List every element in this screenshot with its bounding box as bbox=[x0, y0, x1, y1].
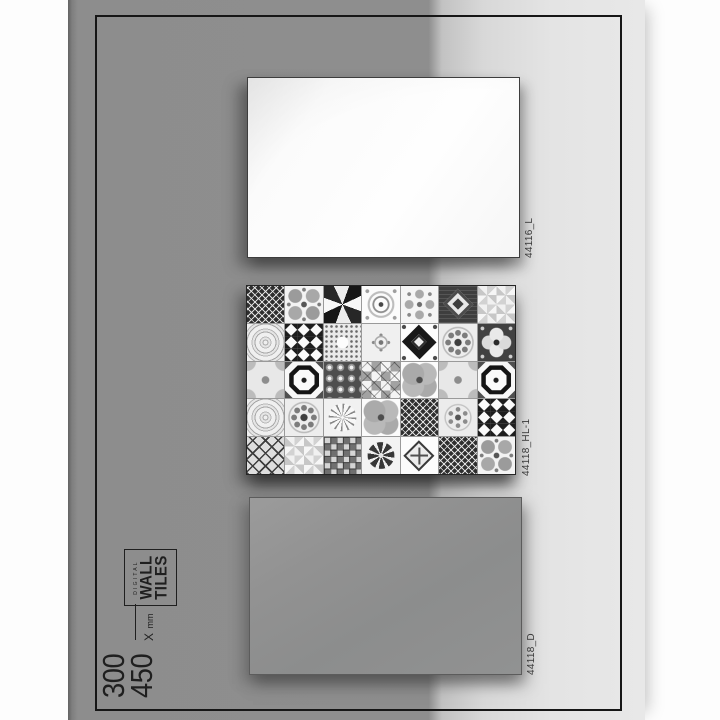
pattern-cell-rosette-lace bbox=[247, 399, 284, 436]
pattern-cell-rosette-ring bbox=[285, 399, 322, 436]
pattern-cell-big-diamond bbox=[401, 324, 438, 361]
tile-sample-dark: 44118_D bbox=[249, 497, 522, 675]
pattern-cell-x-lattice bbox=[247, 437, 284, 474]
pattern-cell-quatrefoil bbox=[439, 362, 476, 399]
pattern-cell-dot-star bbox=[324, 324, 361, 361]
size-numbers: 300 450 bbox=[100, 654, 155, 698]
size-unit-group: X mm bbox=[140, 614, 158, 641]
pattern-cell-diamond-cross bbox=[401, 437, 438, 474]
pattern-cell-rosette-lace bbox=[247, 324, 284, 361]
size-separator: X bbox=[142, 633, 156, 641]
pattern-cell-dot-medallion bbox=[362, 286, 399, 323]
pattern-cell-lattice-dark bbox=[247, 286, 284, 323]
pattern-cell-pinwheel-dark bbox=[324, 286, 361, 323]
pattern-cell-circle-grid bbox=[324, 362, 361, 399]
pattern-cell-lattice-dark bbox=[439, 437, 476, 474]
pattern-cell-dark-floral bbox=[478, 324, 515, 361]
pattern-cell-octagon bbox=[285, 362, 322, 399]
pattern-cell-ornate-dark bbox=[439, 286, 476, 323]
pattern-cell-octagon bbox=[478, 362, 515, 399]
size-unit: mm bbox=[145, 614, 155, 629]
size-bracket-line bbox=[135, 604, 136, 640]
size-spec-block: 300 450 X mm DIGITAL WALL TILES bbox=[99, 548, 179, 698]
tile-sample-patchwork bbox=[246, 285, 516, 475]
pattern-cell-cross-floral bbox=[401, 286, 438, 323]
pattern-cell-starburst bbox=[324, 399, 361, 436]
brand-line-tiles: TILES bbox=[154, 555, 170, 600]
pattern-cell-square-grid bbox=[324, 437, 361, 474]
catalog-page: 44116_L 44118_HL-1 44118_D 300 450 X mm … bbox=[0, 0, 720, 720]
pattern-cell-pinwheel-light bbox=[478, 286, 515, 323]
pattern-cell-petals bbox=[478, 437, 515, 474]
brand-logo-box: DIGITAL WALL TILES bbox=[124, 549, 177, 606]
pattern-cell-diamond-grid bbox=[478, 399, 515, 436]
pattern-cell-rosette-small bbox=[439, 399, 476, 436]
pattern-cell-lattice-dark bbox=[401, 399, 438, 436]
tile-code-label: 44118_D bbox=[526, 633, 537, 675]
pattern-cell-clover bbox=[401, 362, 438, 399]
pattern-cell-quatrefoil bbox=[247, 362, 284, 399]
pattern-cell-petals bbox=[285, 286, 322, 323]
size-height-value: 450 bbox=[128, 654, 156, 698]
tile-code-label: 44116_L bbox=[524, 218, 535, 258]
pattern-cell-flower-circle bbox=[362, 437, 399, 474]
pattern-cell-pinwheel-light bbox=[285, 437, 322, 474]
pattern-cell-clover bbox=[362, 399, 399, 436]
tile-sample-light: 44116_L bbox=[247, 77, 520, 258]
pattern-cell-ornate-light bbox=[362, 324, 399, 361]
pattern-cell-rosette-ring bbox=[439, 324, 476, 361]
pattern-cell-check-cross bbox=[362, 362, 399, 399]
pattern-cell-diamond-grid bbox=[285, 324, 322, 361]
